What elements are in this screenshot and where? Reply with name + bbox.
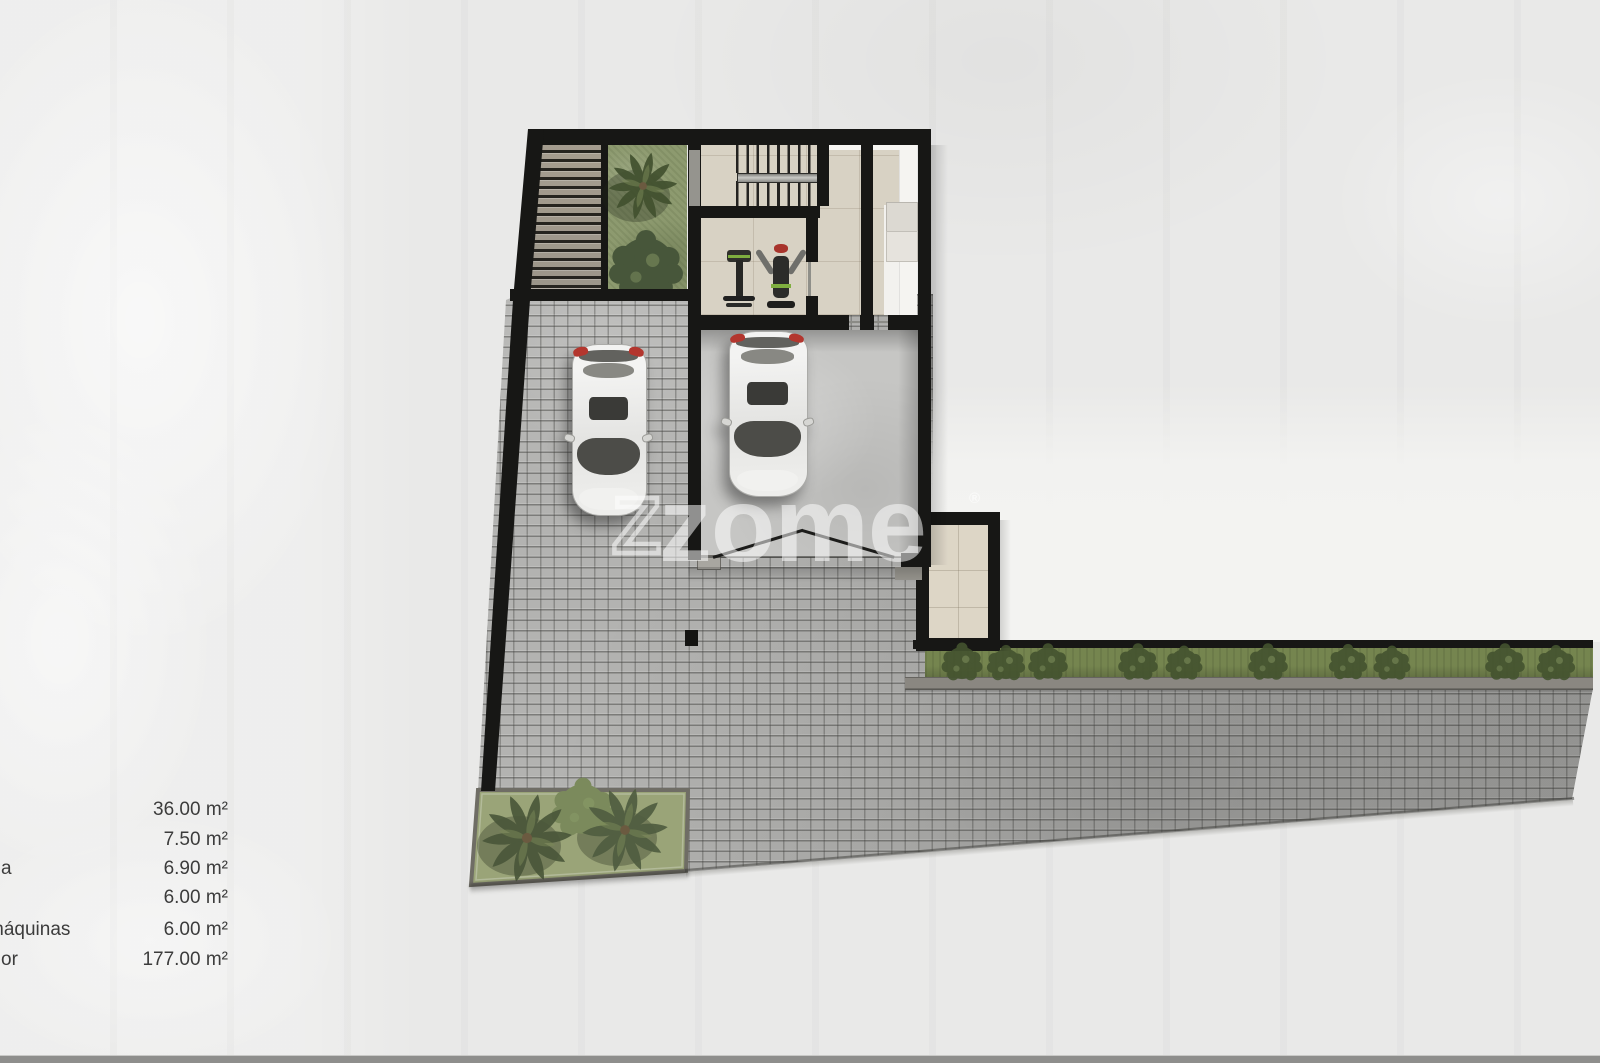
legend-value: 6.00 m² — [0, 887, 228, 909]
legend-row: 36.00 m² — [0, 799, 240, 823]
storage-box — [886, 202, 918, 233]
legend-row: a 6.90 m² — [0, 858, 240, 882]
door-opening — [874, 321, 888, 323]
car-in-garage — [729, 331, 806, 495]
legend-row: máquinas 6.00 m² — [0, 919, 240, 943]
wall-under-garden — [510, 289, 701, 301]
legend-row: or 177.00 m² — [0, 949, 240, 973]
wall-gym-right-b — [806, 296, 818, 315]
registered-trademark-icon: ® — [969, 490, 980, 507]
garage-wall-shadow-right — [898, 330, 920, 557]
wall-right — [918, 145, 931, 567]
staircase-upper-flight — [736, 145, 817, 173]
wall-corridor-divider — [861, 145, 873, 315]
ramp-divider-wall — [601, 145, 608, 290]
garage-apron-shadow — [688, 567, 922, 583]
area-legend: 36.00 m² 7.50 m² a 6.90 m² 6.00 m² máqui… — [0, 793, 240, 973]
gym-weight-station — [723, 250, 755, 308]
garden-strip — [608, 145, 687, 290]
staircase-handrail — [737, 173, 819, 183]
wall-garage-top-a — [688, 315, 849, 330]
wall-garage-top-b — [860, 315, 874, 330]
wall-garage-bottom-right — [901, 553, 931, 567]
room-drop-shadow — [1000, 520, 1011, 651]
courtyard-pillar — [685, 630, 698, 646]
legend-value: 6.00 m² — [0, 919, 228, 941]
door-garden — [689, 150, 700, 208]
legend-value: 36.00 m² — [0, 799, 228, 821]
wall-gym-right-a — [806, 218, 818, 262]
wall-under-stairs — [688, 206, 820, 218]
legend-value: 6.90 m² — [0, 858, 228, 880]
legend-value: 7.50 m² — [0, 829, 228, 851]
hedge-planter-strip — [925, 648, 1593, 677]
door-opening — [849, 321, 860, 323]
staircase-lower-flight — [736, 181, 817, 206]
wall-top — [528, 129, 931, 145]
gym-exercise-bike — [759, 243, 803, 313]
garage-door-threshold — [700, 556, 902, 558]
white-terrace-area — [931, 385, 1600, 642]
legend-value: 177.00 m² — [0, 949, 228, 971]
hedge-curb-shadow — [905, 689, 1593, 693]
storage-box — [886, 231, 918, 262]
legend-row: 6.00 m² — [0, 887, 240, 911]
car-outside — [572, 344, 645, 514]
wall-garage-top-c — [888, 315, 918, 330]
legend-row: 7.50 m² — [0, 829, 240, 853]
gym-door-leaf — [808, 262, 811, 296]
wall-stair-right — [817, 145, 829, 206]
building-drop-shadow — [931, 145, 948, 565]
